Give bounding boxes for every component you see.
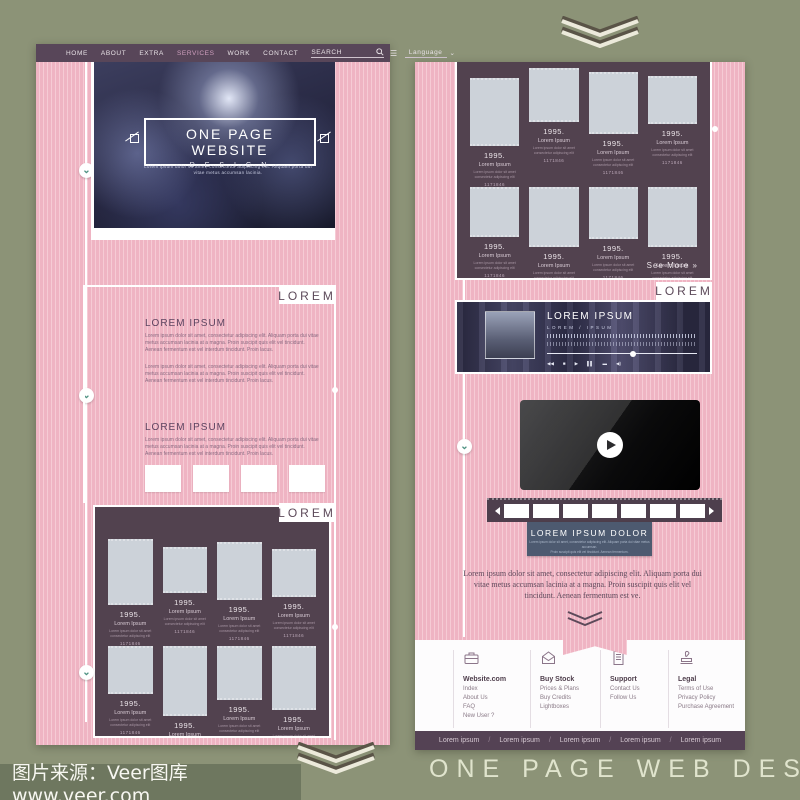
- gallery-item-desc: Lorem ipsum dolor sit amet consectetur a…: [163, 617, 208, 626]
- gallery-item[interactable]: 1995.Lorem IpsumLorem ipsum dolor sit am…: [470, 187, 519, 280]
- gallery-thumbnail[interactable]: [217, 542, 262, 600]
- gallery-item-desc: Lorem ipsum dolor sit amet consectetur a…: [272, 734, 317, 738]
- waveform: [547, 342, 697, 346]
- right-page-mockup: ⌄ ⌄ 1995.Lorem IpsumLorem ipsum dolor si…: [415, 62, 745, 750]
- filmstrip-frame[interactable]: [592, 504, 617, 518]
- gallery-grid: 1995.Lorem IpsumLorem ipsum dolor sit am…: [457, 68, 710, 280]
- gallery-thumbnail[interactable]: [163, 547, 208, 593]
- music-player: LOREM IPSUM LOREM / IPSUM ◀◀ ■ ▶ ▌▌ ▬ ◀): [455, 300, 712, 374]
- gallery-item-code: 1171846: [589, 275, 638, 280]
- gallery-item[interactable]: 1995.Lorem IpsumLorem ipsum dolor sit am…: [589, 187, 638, 280]
- section-frame-left: [83, 285, 85, 503]
- footer-column-support: Support Contact Us Follow Us: [600, 650, 675, 728]
- timeline-chevron-marker[interactable]: ⌄: [457, 439, 472, 454]
- body-paragraph: Lorem ipsum dolor sit amet, consectetur …: [145, 437, 323, 458]
- gallery-item-code: 1171846: [648, 160, 697, 165]
- gallery-item-year: 1995.: [589, 139, 638, 148]
- gallery-thumbnail[interactable]: [648, 187, 697, 247]
- nav-item-about[interactable]: ABOUT: [101, 50, 126, 57]
- gallery-thumbnail[interactable]: [589, 187, 638, 239]
- watermark-bar: 图片来源：Veer图库 www.veer.com: [0, 764, 301, 800]
- gallery-item[interactable]: 1995.Lorem IpsumLorem ipsum dolor sit am…: [470, 78, 519, 187]
- hero-banner: ONE PAGE WEBSITE — D E S I G N — Lorem i…: [91, 62, 335, 240]
- gallery-thumbnail[interactable]: [272, 549, 317, 597]
- gallery-item-desc: Lorem ipsum dolor sit amet consectetur a…: [529, 271, 578, 280]
- gallery-item-title: Lorem Ipsum: [529, 138, 578, 144]
- footer-bar-link[interactable]: Lorem ipsum: [560, 737, 600, 744]
- gallery-item-desc: Lorem ipsum dolor sit amet consectetur a…: [589, 263, 638, 272]
- gallery-thumbnail[interactable]: [529, 187, 578, 247]
- timeline-dot: [332, 624, 338, 630]
- waveform: [547, 334, 697, 338]
- body-paragraph: Lorem ipsum dolor sit amet, consectetur …: [145, 333, 323, 354]
- gallery-item-title: Lorem Ipsum: [529, 263, 578, 269]
- gallery-item-code: 1171846: [217, 736, 262, 738]
- play-icon[interactable]: ▶: [575, 361, 578, 367]
- gallery-item[interactable]: 1995.Lorem IpsumLorem ipsum dolor sit am…: [529, 187, 578, 280]
- play-icon: [607, 440, 616, 450]
- search-icon[interactable]: [376, 48, 384, 56]
- placeholder-button[interactable]: [241, 465, 277, 492]
- filmstrip-frame[interactable]: [621, 504, 646, 518]
- search-label: SEARCH: [311, 49, 342, 56]
- chevron-down-icon: ⌄: [460, 442, 468, 452]
- timeline-chevron-marker[interactable]: ⌄: [79, 665, 94, 680]
- gallery-item-desc: Lorem ipsum dolor sit amet consectetur a…: [648, 271, 697, 280]
- footer-bar-link[interactable]: Lorem ipsum: [439, 737, 479, 744]
- gallery-item-year: 1995.: [217, 605, 262, 614]
- section-heading: LOREM IPSUM: [145, 318, 226, 329]
- gallery-item[interactable]: 1995.Lorem IpsumLorem ipsum dolor sit am…: [272, 549, 317, 646]
- gallery-thumbnail[interactable]: [470, 187, 519, 237]
- pause-icon[interactable]: ▌▌: [587, 361, 593, 367]
- gallery-section: 1995.Lorem IpsumLorem ipsum dolor sit am…: [455, 62, 712, 280]
- gallery-item-desc: Lorem ipsum dolor sit amet consectetur a…: [589, 158, 638, 167]
- gallery-thumbnail[interactable]: [648, 76, 697, 124]
- track-subtitle: LOREM / IPSUM: [547, 325, 697, 330]
- hero-tagline-line2: vitae metus accumsan lacinia.: [134, 170, 322, 176]
- footer-column-legal: Legal Terms of Use Privacy Policy Purcha…: [668, 650, 750, 728]
- gallery-item[interactable]: 1995.Lorem IpsumLorem ipsum dolor sit am…: [217, 646, 262, 738]
- play-button[interactable]: [597, 432, 623, 458]
- gallery-item-title: Lorem Ipsum: [272, 726, 317, 732]
- nav-item-work[interactable]: WORK: [228, 50, 251, 57]
- hero-title-frame: ONE PAGE WEBSITE — D E S I G N —: [144, 118, 316, 166]
- gallery-item-title: Lorem Ipsum: [470, 253, 519, 259]
- gallery-item-title: Lorem Ipsum: [470, 162, 519, 168]
- footer-column-title: Support: [610, 676, 675, 683]
- gallery-item[interactable]: 1995.Lorem IpsumLorem ipsum dolor sit am…: [163, 646, 208, 738]
- gallery-item-title: Lorem Ipsum: [217, 716, 262, 722]
- gallery-item-code: 1171846: [163, 629, 208, 634]
- stamp-icon: [678, 650, 695, 666]
- timeline-dot: [712, 126, 718, 132]
- separator: /: [549, 737, 551, 744]
- cta-title: LOREM IPSUM DOLOR: [527, 528, 652, 538]
- nav-item-services[interactable]: SERVICES: [177, 50, 215, 57]
- gallery-item[interactable]: 1995.Lorem IpsumLorem ipsum dolor sit am…: [648, 76, 697, 187]
- gallery-item-desc: Lorem ipsum dolor sit amet consectetur a…: [470, 170, 519, 179]
- gallery-item-code: 1171846: [108, 730, 153, 735]
- gallery-item-desc: Lorem ipsum dolor sit amet consectetur a…: [529, 146, 578, 155]
- album-art[interactable]: [485, 311, 535, 359]
- filmstrip-carousel: [487, 498, 722, 522]
- gallery-item-year: 1995.: [648, 252, 697, 261]
- gallery-item-code: 1171846: [272, 633, 317, 638]
- envelope-icon: [540, 650, 557, 666]
- track-title: LOREM IPSUM: [547, 311, 697, 322]
- footer-link[interactable]: Follow Us: [610, 695, 675, 701]
- gallery-thumbnail[interactable]: [470, 78, 519, 146]
- gallery-item[interactable]: 1995.Lorem IpsumLorem ipsum dolor sit am…: [163, 547, 208, 646]
- top-nav-bar: HOME ABOUT EXTRA SERVICES WORK CONTACT S…: [36, 44, 390, 62]
- gallery-item-year: 1995.: [272, 715, 317, 724]
- footer-link[interactable]: Lightboxes: [540, 704, 608, 710]
- gallery-item-desc: Lorem ipsum dolor sit amet consectetur a…: [217, 624, 262, 633]
- see-more-link[interactable]: See More »: [647, 261, 698, 270]
- briefcase-icon: [463, 650, 480, 666]
- body-paragraph: Lorem ipsum dolor sit amet, consectetur …: [145, 364, 323, 385]
- filmstrip-frame[interactable]: [680, 504, 705, 518]
- nav-item-extra[interactable]: EXTRA: [139, 50, 164, 57]
- language-selector[interactable]: Language: [405, 49, 447, 58]
- footer-link[interactable]: FAQ: [463, 704, 531, 710]
- filmstrip-frame[interactable]: [533, 504, 558, 518]
- gallery-item-year: 1995.: [529, 252, 578, 261]
- gallery-grid: 1995.Lorem IpsumLorem ipsum dolor sit am…: [95, 539, 329, 738]
- gallery-item-title: Lorem Ipsum: [108, 710, 153, 716]
- gallery-item-year: 1995.: [163, 598, 208, 607]
- gallery-thumbnail[interactable]: [217, 646, 262, 700]
- eject-icon[interactable]: ▬: [603, 361, 608, 367]
- closing-paragraph: Lorem ipsum dolor sit amet, consectetur …: [460, 568, 705, 601]
- gallery-item[interactable]: 1995.Lorem IpsumLorem ipsum dolor sit am…: [217, 542, 262, 646]
- gallery-item-title: Lorem Ipsum: [272, 613, 317, 619]
- footer-column-buy-stock: Buy Stock Prices & Plans Buy Credits Lig…: [530, 650, 608, 728]
- hero-tagline: Lorem ipsum dolor sit amet, consectetur …: [134, 164, 322, 176]
- footer-column-website: Website.com Index About Us FAQ New User …: [453, 650, 531, 728]
- section-tab-lorem[interactable]: LOREM: [279, 503, 335, 522]
- gallery-item-desc: Lorem ipsum dolor sit amet consectetur a…: [470, 261, 519, 270]
- gallery-item[interactable]: 1995.Lorem IpsumLorem ipsum dolor sit am…: [108, 539, 153, 646]
- cta-subline: Lorem ipsum dolor sit amet, consectetur …: [527, 540, 652, 550]
- footer-link[interactable]: Purchase Agreement: [678, 704, 750, 710]
- gallery-item[interactable]: 1995.Lorem IpsumLorem ipsum dolor sit am…: [589, 72, 638, 187]
- scroll-down-icon: [565, 610, 605, 626]
- gallery-item[interactable]: 1995.Lorem IpsumLorem ipsum dolor sit am…: [108, 646, 153, 738]
- gallery-item-desc: Lorem ipsum dolor sit amet consectetur a…: [108, 629, 153, 638]
- nav-item-contact[interactable]: CONTACT: [263, 50, 298, 57]
- progress-bar[interactable]: [547, 353, 697, 354]
- gallery-thumbnail[interactable]: [589, 72, 638, 134]
- design-caption: ONE PAGE WEB DESIGN: [429, 755, 800, 784]
- previous-icon[interactable]: ◀◀: [547, 361, 554, 367]
- gallery-item-year: 1995.: [217, 705, 262, 714]
- timeline-dot: [332, 387, 338, 393]
- chevron-down-icon[interactable]: ⌄: [450, 49, 456, 57]
- footer-link[interactable]: Contact Us: [610, 686, 675, 692]
- footer-column-title: Buy Stock: [540, 676, 608, 683]
- gallery-item-title: Lorem Ipsum: [217, 616, 262, 622]
- carousel-right-arrow[interactable]: [709, 507, 714, 515]
- timeline-chevron-marker[interactable]: ⌄: [79, 388, 94, 403]
- chevron-down-icon: ⌄: [82, 166, 90, 176]
- gallery-item-year: 1995.: [589, 244, 638, 253]
- footer-bar-link[interactable]: Lorem ipsum: [681, 737, 721, 744]
- gallery-item-code: 1171846: [217, 636, 262, 641]
- scroll-down-chevron-bottom: [294, 742, 378, 774]
- gallery-item-code: 1171846: [589, 170, 638, 175]
- gallery-item-year: 1995.: [163, 721, 208, 730]
- gallery-item-desc: Lorem ipsum dolor sit amet consectetur a…: [272, 621, 317, 630]
- hero-title: ONE PAGE WEBSITE: [146, 126, 314, 158]
- gallery-thumbnail[interactable]: [272, 646, 317, 710]
- section-tab-lorem[interactable]: LOREM: [656, 282, 712, 300]
- nav-item-home[interactable]: HOME: [66, 50, 88, 57]
- gallery-item-title: Lorem Ipsum: [589, 255, 638, 261]
- placeholder-button[interactable]: [145, 465, 181, 492]
- gallery-section: 1995.Lorem IpsumLorem ipsum dolor sit am…: [93, 505, 331, 738]
- footer: Website.com Index About Us FAQ New User …: [415, 640, 745, 731]
- gallery-item-title: Lorem Ipsum: [108, 621, 153, 627]
- footer-column-title: Website.com: [463, 676, 531, 683]
- footer-links-bar: Lorem ipsum / Lorem ipsum / Lorem ipsum …: [415, 731, 745, 750]
- footer-link[interactable]: Privacy Policy: [678, 695, 750, 701]
- footer-link[interactable]: Buy Credits: [540, 695, 608, 701]
- gallery-item-year: 1995.: [470, 242, 519, 251]
- chevron-down-icon: ⌄: [82, 668, 90, 678]
- separator: /: [609, 737, 611, 744]
- player-controls: ◀◀ ■ ▶ ▌▌ ▬ ◀): [547, 361, 697, 367]
- search-field[interactable]: SEARCH: [311, 48, 384, 58]
- placeholder-button-row: [145, 465, 325, 492]
- placeholder-button[interactable]: [193, 465, 229, 492]
- gallery-item-code: 1171846: [470, 273, 519, 278]
- separator: /: [488, 737, 490, 744]
- footer-bar-link[interactable]: Lorem ipsum: [499, 737, 539, 744]
- carousel-left-arrow[interactable]: [495, 507, 500, 515]
- gallery-item-title: Lorem Ipsum: [589, 150, 638, 156]
- menu-icon[interactable]: ☰: [390, 49, 398, 58]
- gallery-item-year: 1995.: [272, 602, 317, 611]
- gallery-thumbnail[interactable]: [163, 646, 208, 716]
- gallery-thumbnail[interactable]: [108, 646, 153, 694]
- separator: /: [670, 737, 672, 744]
- gallery-item-year: 1995.: [108, 699, 153, 708]
- section-tab-lorem[interactable]: LOREM: [279, 287, 335, 304]
- gallery-item-title: Lorem Ipsum: [163, 609, 208, 615]
- gallery-item-year: 1995.: [529, 127, 578, 136]
- filmstrip-frame[interactable]: [563, 504, 588, 518]
- gallery-item-year: 1995.: [470, 151, 519, 160]
- gallery-item[interactable]: 1995.Lorem IpsumLorem ipsum dolor sit am…: [529, 68, 578, 187]
- progress-handle[interactable]: [630, 351, 636, 357]
- left-page-mockup: HOME ABOUT EXTRA SERVICES WORK CONTACT S…: [36, 44, 390, 745]
- gallery-item-year: 1995.: [648, 129, 697, 138]
- cta-button[interactable]: LOREM IPSUM DOLOR Lorem ipsum dolor sit …: [527, 522, 652, 556]
- gallery-thumbnail[interactable]: [108, 539, 153, 605]
- footer-column-title: Legal: [678, 676, 750, 683]
- footer-link[interactable]: Index: [463, 686, 531, 692]
- footer-link[interactable]: Terms of Use: [678, 686, 750, 692]
- gallery-thumbnail[interactable]: [529, 68, 578, 122]
- placeholder-button[interactable]: [289, 465, 325, 492]
- stop-icon[interactable]: ■: [563, 361, 566, 367]
- scroll-down-chevron-top: [558, 16, 642, 48]
- footer-link[interactable]: Prices & Plans: [540, 686, 608, 692]
- gallery-item-title: Lorem Ipsum: [163, 732, 208, 738]
- filmstrip-frame[interactable]: [650, 504, 675, 518]
- design-canvas: HOME ABOUT EXTRA SERVICES WORK CONTACT S…: [0, 0, 800, 800]
- gallery-item-desc: Lorem ipsum dolor sit amet consectetur a…: [108, 718, 153, 727]
- gallery-item-desc: Lorem ipsum dolor sit amet consectetur a…: [217, 724, 262, 733]
- footer-link[interactable]: About Us: [463, 695, 531, 701]
- filmstrip-frame[interactable]: [504, 504, 529, 518]
- gallery-item[interactable]: 1995.Lorem IpsumLorem ipsum dolor sit am…: [272, 646, 317, 738]
- cta-subline: Proin suscipit quis elit vel tincidunt. …: [527, 550, 652, 555]
- footer-link[interactable]: New User ?: [463, 713, 531, 719]
- video-player: [520, 400, 700, 490]
- gallery-item-title: Lorem Ipsum: [648, 140, 697, 146]
- volume-icon[interactable]: ◀): [616, 361, 621, 367]
- gallery-item-desc: Lorem ipsum dolor sit amet consectetur a…: [648, 148, 697, 157]
- footer-bar-link[interactable]: Lorem ipsum: [620, 737, 660, 744]
- gallery-item-code: 1171846: [529, 158, 578, 163]
- gallery-item-year: 1995.: [108, 610, 153, 619]
- section-heading: LOREM IPSUM: [145, 422, 226, 433]
